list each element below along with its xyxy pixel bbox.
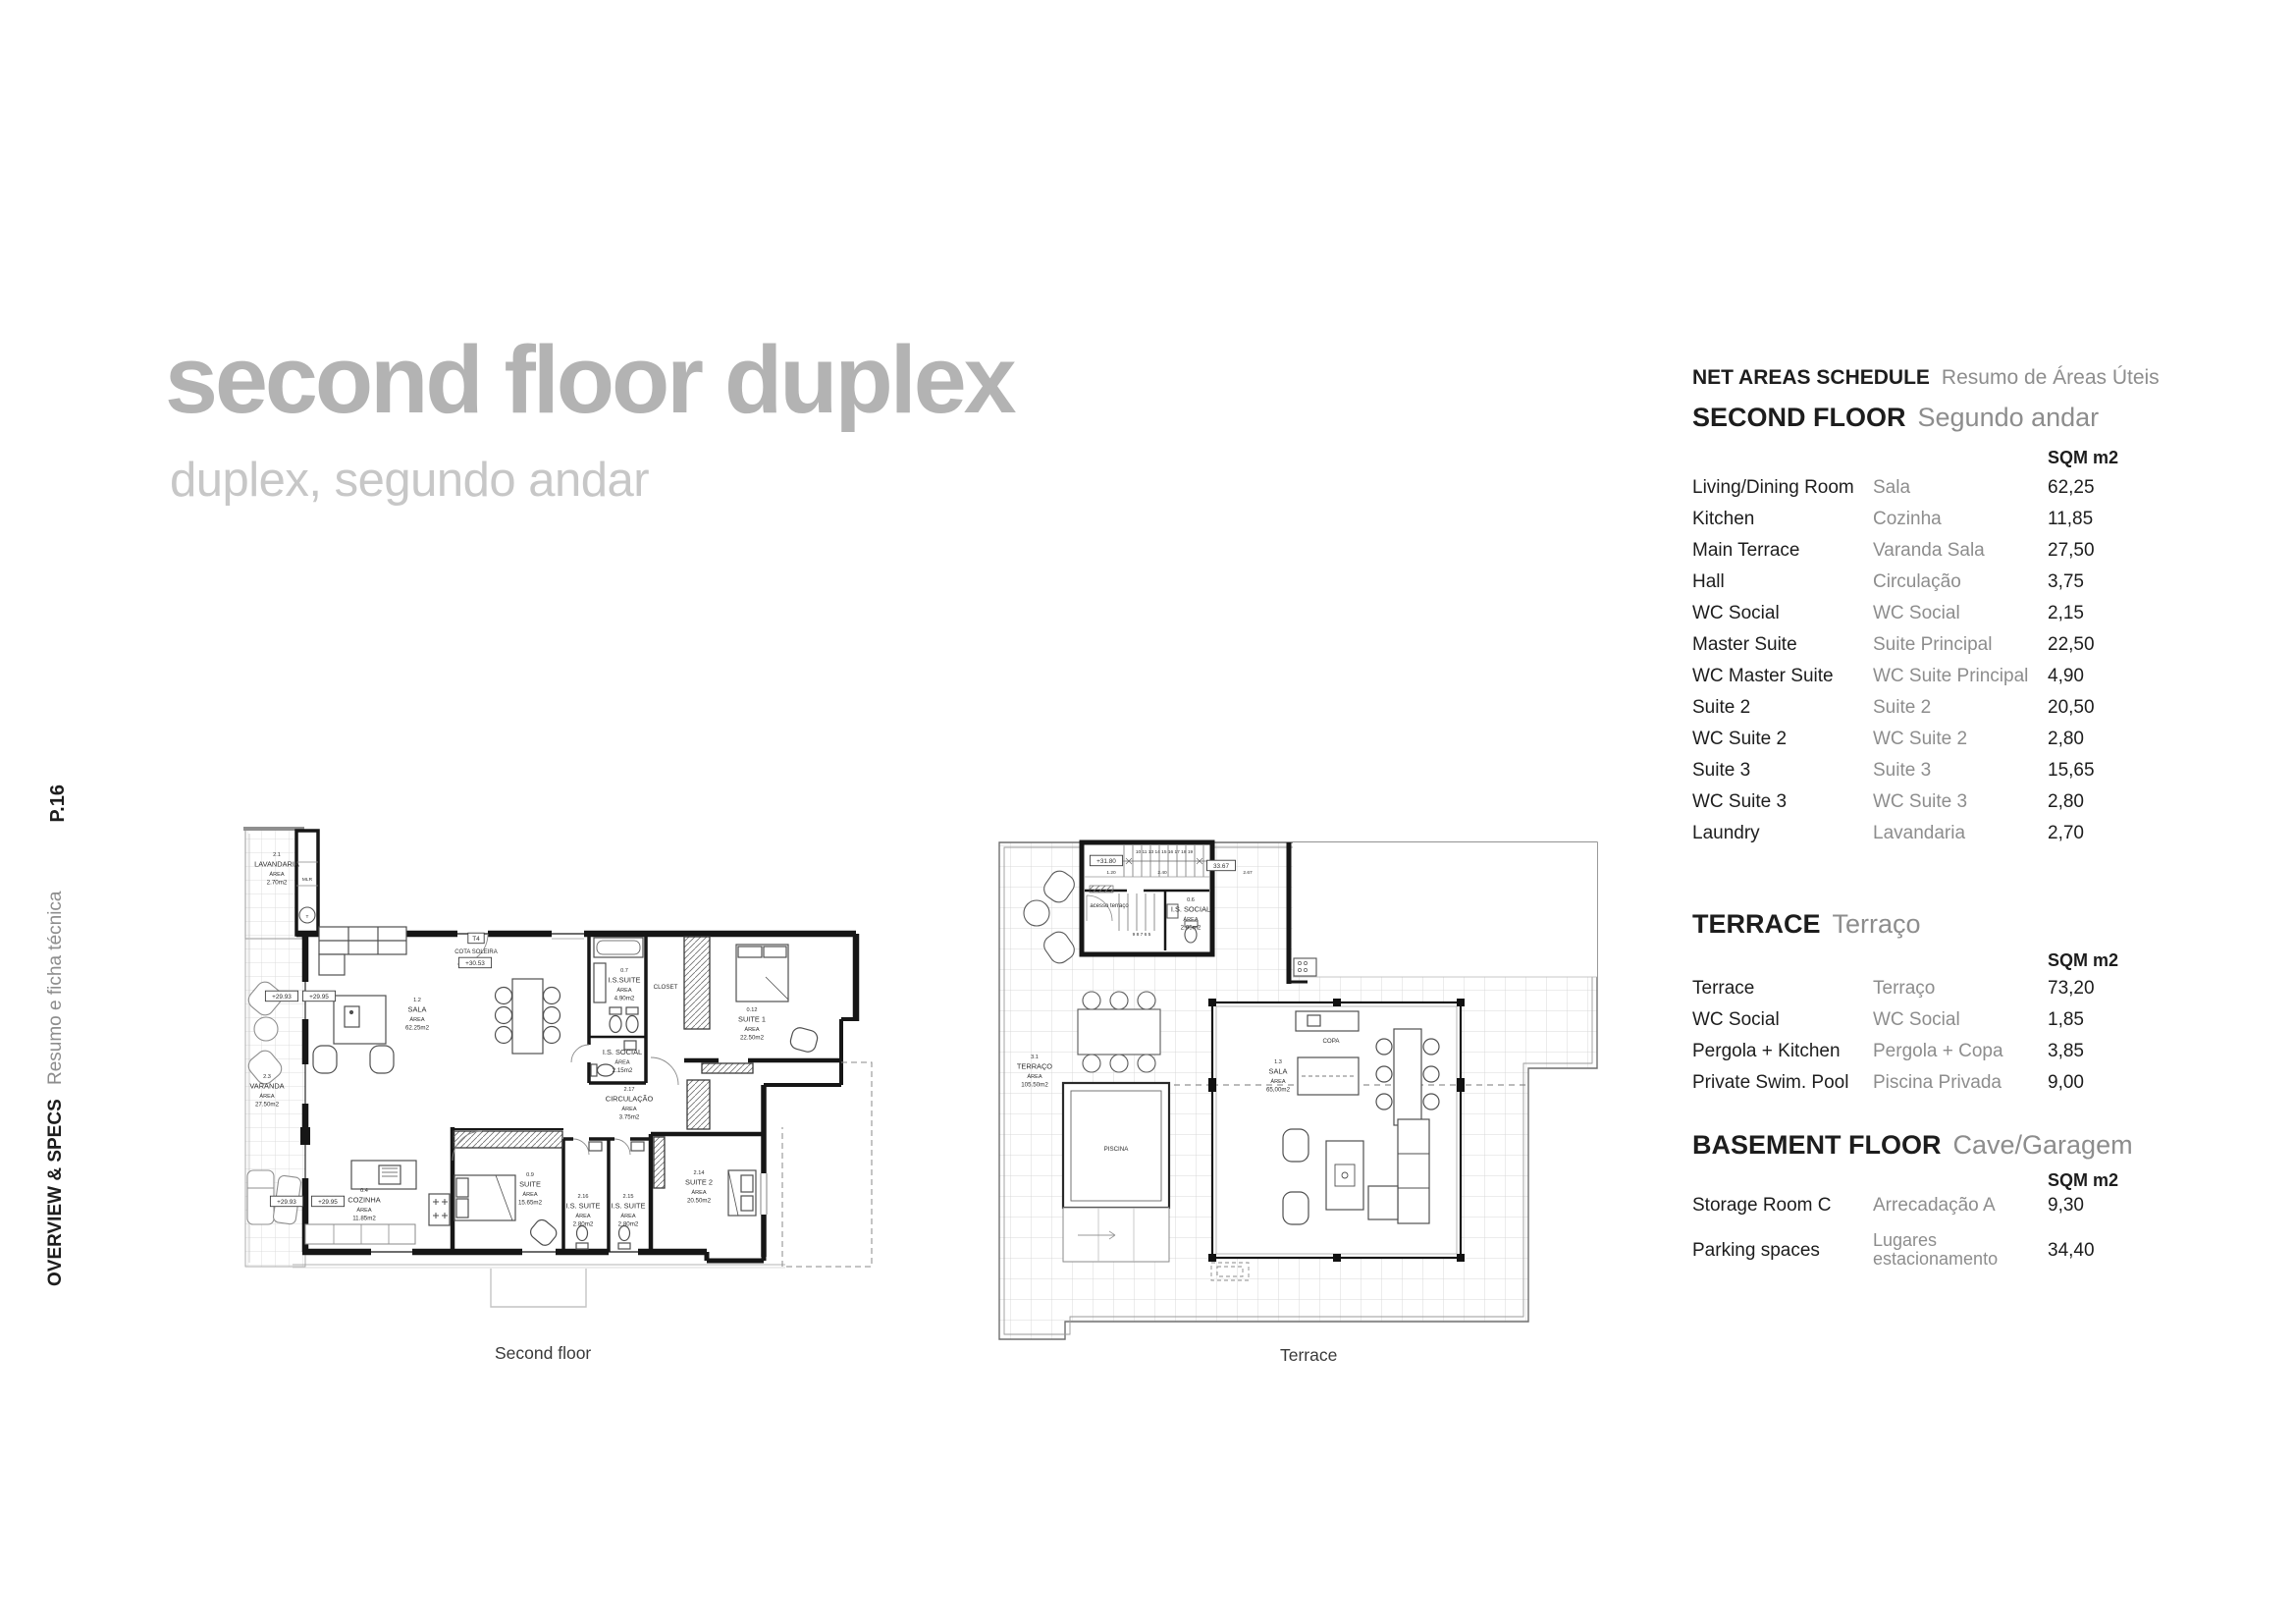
plan-label: 1.20 <box>1106 870 1116 876</box>
section-label-pt: Resumo e ficha técnica <box>45 892 66 1100</box>
svg-text:+30.53: +30.53 <box>465 960 485 967</box>
svg-text:T4: T4 <box>472 936 480 943</box>
plan-caption-second-floor: Second floor <box>495 1343 591 1364</box>
svg-text:33.67: 33.67 <box>1213 863 1229 870</box>
roof-edge-dashed <box>782 1062 872 1267</box>
row-label-en: WC Social <box>1692 1009 1873 1030</box>
section-label: OVERVIEW & SPECSResumo e ficha técnica <box>45 890 67 1286</box>
unit-label: SQM m2 <box>2048 1169 2163 1191</box>
page-subtitle: duplex, segundo andar <box>170 455 649 508</box>
plan-label: PISCINA <box>1104 1146 1130 1153</box>
plan-label: 9 8 7 6 5 <box>1133 932 1151 938</box>
row-label-en: Terrace <box>1692 978 1873 999</box>
section-label-en: OVERVIEW & SPECS <box>45 1099 66 1286</box>
row-label-pt: Sala <box>1873 477 2048 498</box>
schedule-row: LaundryLavandaria2,70 <box>1692 823 2163 854</box>
row-label-en: Kitchen <box>1692 509 1873 529</box>
plan-label: 2.16I.S. SUITEÁREA2.80m2 <box>566 1194 601 1228</box>
row-value-sqm: 3,75 <box>2048 571 2163 592</box>
row-label-pt: Lavandaria <box>1873 823 2048 843</box>
svg-text:acesso terraço: acesso terraço <box>1090 903 1129 909</box>
floorplan-second-floor: 2.1LAVANDARIAÁREA2.70m22.3VARANDAÁREA27.… <box>240 823 879 1319</box>
row-label-en: WC Social <box>1692 603 1873 623</box>
row-label-en: Hall <box>1692 571 1873 592</box>
row-value-sqm: 3,85 <box>2048 1041 2163 1061</box>
schedule-row: HallCirculação3,75 <box>1692 571 2163 603</box>
plan-label: COPA <box>1322 1038 1340 1045</box>
svg-text:T: T <box>306 914 309 920</box>
svg-text:0.9SUITEÁREA15.65m2: 0.9SUITEÁREA15.65m2 <box>518 1172 543 1207</box>
plan-label: 1.2SALAÁREA62.25m2 <box>405 998 430 1032</box>
svg-text:2.16I.S. SUITEÁREA2.80m2: 2.16I.S. SUITEÁREA2.80m2 <box>566 1194 601 1228</box>
row-value-sqm: 2,80 <box>2048 791 2163 812</box>
schedule-row: WC Master SuiteWC Suite Principal4,90 <box>1692 666 2163 697</box>
plan-label: 2.17CIRCULAÇÃOÁREA3.75m2 <box>606 1087 654 1121</box>
row-label-pt: Arrecadação A <box>1873 1195 2048 1216</box>
plan-label: 2.40 <box>1157 870 1167 876</box>
schedule-row: Living/Dining RoomSala62,25 <box>1692 477 2163 509</box>
schedule-row: Suite 3Suite 315,65 <box>1692 760 2163 791</box>
schedule-row: WC SocialWC Social2,15 <box>1692 603 2163 634</box>
svg-text:1.20: 1.20 <box>1106 870 1116 876</box>
schedule-section-title-terrace: TERRACETerraço <box>1692 907 2163 941</box>
plan-label: 0.12SUITE 1ÁREA22.50m2 <box>738 1007 766 1042</box>
row-label-en: Living/Dining Room <box>1692 477 1873 498</box>
schedule-row: TerraceTerraço73,20 <box>1692 978 2163 1009</box>
schedule-row: WC Suite 3WC Suite 32,80 <box>1692 791 2163 823</box>
schedule-unit-row: SQM m2 <box>1692 949 2163 971</box>
svg-text:2.15I.S. SUITEÁREA2.80m2: 2.15I.S. SUITEÁREA2.80m2 <box>612 1194 646 1228</box>
row-value-sqm: 9,00 <box>2048 1072 2163 1093</box>
schedule-row: Suite 2Suite 220,50 <box>1692 697 2163 729</box>
row-value-sqm: 15,65 <box>2048 760 2163 781</box>
schedule-row: Master SuiteSuite Principal22,50 <box>1692 634 2163 666</box>
svg-text:PISCINA: PISCINA <box>1104 1146 1130 1153</box>
svg-text:+29.93: +29.93 <box>272 994 292 1001</box>
svg-text:COTA SOLEIRA: COTA SOLEIRA <box>454 949 498 955</box>
row-label-pt: WC Suite 3 <box>1873 791 2048 812</box>
svg-text:COPA: COPA <box>1322 1038 1340 1045</box>
pool <box>1063 1083 1169 1262</box>
plan-label: 0.9SUITEÁREA15.65m2 <box>518 1172 543 1207</box>
svg-text:10 11 13 14 15 16 17 18 19: 10 11 13 14 15 16 17 18 19 <box>1136 849 1194 855</box>
row-label-pt: Pergola + Copa <box>1873 1041 2048 1061</box>
schedule-section-title-basement-floor: BASEMENT FLOORCave/Garagem <box>1692 1128 2163 1162</box>
net-areas-schedule: NET AREAS SCHEDULEResumo de Áreas ÚteisS… <box>1692 365 2163 1273</box>
row-value-sqm: 9,30 <box>2048 1195 2163 1216</box>
schedule-row: KitchenCozinha11,85 <box>1692 509 2163 540</box>
svg-text:9 8 7 6 5: 9 8 7 6 5 <box>1133 932 1151 938</box>
section-title-en: SECOND FLOOR <box>1692 403 1906 432</box>
plan-label: 2.15I.S. SUITEÁREA2.80m2 <box>612 1194 646 1228</box>
section-title-pt: Segundo andar <box>1918 403 2100 432</box>
row-label-pt: Piscina Privada <box>1873 1072 2048 1093</box>
svg-text:0.12SUITE 1ÁREA22.50m2: 0.12SUITE 1ÁREA22.50m2 <box>738 1007 766 1042</box>
plan-label: +29.93 <box>270 1196 302 1207</box>
brochure-page: second floor duplex duplex, segundo anda… <box>0 0 2296 1624</box>
plan-caption-terrace: Terrace <box>1280 1345 1337 1366</box>
plan-label: +30.53 <box>458 957 491 968</box>
row-label-en: Pergola + Kitchen <box>1692 1041 1873 1061</box>
plan-label: 33.67 <box>1207 860 1236 871</box>
plan-label: MLR <box>302 877 313 883</box>
svg-text:+31.80: +31.80 <box>1096 858 1116 865</box>
plan-label: T4 <box>468 933 484 944</box>
plan-label: +31.80 <box>1090 855 1122 866</box>
schedule-row: Private Swim. PoolPiscina Privada9,00 <box>1692 1072 2163 1104</box>
section-title-en: BASEMENT FLOOR <box>1692 1130 1942 1160</box>
section-title-pt: Terraço <box>1833 909 1921 939</box>
row-value-sqm: 27,50 <box>2048 540 2163 561</box>
row-label-en: Suite 3 <box>1692 760 1873 781</box>
row-label-pt: Circulação <box>1873 571 2048 592</box>
svg-text:+29.95: +29.95 <box>318 1199 338 1206</box>
schedule-header-pt: Resumo de Áreas Úteis <box>1942 366 2160 389</box>
plan-label: +29.93 <box>265 991 297 1001</box>
row-value-sqm: 2,70 <box>2048 823 2163 843</box>
schedule-header-en: NET AREAS SCHEDULE <box>1692 366 1930 389</box>
row-label-pt: WC Suite Principal <box>1873 666 2048 686</box>
floorplan-terrace: 3.1TERRAÇOÁREA105.50m21.3SALAÁREA65,00m2… <box>989 833 1637 1351</box>
schedule-row: Storage Room CArrecadação A9,30 <box>1692 1195 2163 1226</box>
row-label-en: WC Suite 3 <box>1692 791 1873 812</box>
page-title: second floor duplex <box>165 332 1014 427</box>
schedule-header: NET AREAS SCHEDULEResumo de Áreas Úteis <box>1692 365 2163 391</box>
row-label-pt: Varanda Sala <box>1873 540 2048 561</box>
plan-label: 0.4COZINHAÁREA11.85m2 <box>347 1188 380 1222</box>
row-value-sqm: 2,15 <box>2048 603 2163 623</box>
row-value-sqm: 73,20 <box>2048 978 2163 999</box>
plan-label: 0.7I.S.SUITEÁREA4.90m2 <box>609 968 641 1002</box>
void-area <box>1293 842 1597 977</box>
unit-label: SQM m2 <box>2048 447 2163 468</box>
plan-label: 2.67 <box>1243 870 1253 876</box>
row-label-pt: WC Social <box>1873 603 2048 623</box>
section-title-en: TERRACE <box>1692 909 1821 939</box>
plan-label: +29.95 <box>302 991 335 1001</box>
svg-text:1.2SALAÁREA62.25m2: 1.2SALAÁREA62.25m2 <box>405 998 430 1032</box>
row-label-pt: Lugares estacionamento <box>1873 1231 2048 1269</box>
row-label-pt: WC Social <box>1873 1009 2048 1030</box>
row-label-en: Master Suite <box>1692 634 1873 655</box>
plan-label: +29.95 <box>311 1196 344 1207</box>
row-label-en: Storage Room C <box>1692 1195 1873 1216</box>
svg-text:MLR: MLR <box>302 877 313 883</box>
schedule-unit-row: SQM m2 <box>1692 1169 2163 1191</box>
row-label-pt: Suite 3 <box>1873 760 2048 781</box>
plan-label: T <box>306 914 309 920</box>
row-label-pt: Terraço <box>1873 978 2048 999</box>
plan-label: COTA SOLEIRA <box>454 949 498 955</box>
svg-text:2.40: 2.40 <box>1157 870 1167 876</box>
schedule-row: Pergola + KitchenPergola + Copa3,85 <box>1692 1041 2163 1072</box>
row-label-en: Private Swim. Pool <box>1692 1072 1873 1093</box>
row-label-en: WC Master Suite <box>1692 666 1873 686</box>
schedule-section-title-second-floor: SECOND FLOORSegundo andar <box>1692 401 2163 434</box>
svg-text:0.7I.S.SUITEÁREA4.90m2: 0.7I.S.SUITEÁREA4.90m2 <box>609 968 641 1002</box>
svg-text:0.4COZINHAÁREA11.85m2: 0.4COZINHAÁREA11.85m2 <box>347 1188 380 1222</box>
row-label-en: Main Terrace <box>1692 540 1873 561</box>
row-value-sqm: 22,50 <box>2048 634 2163 655</box>
section-title-pt: Cave/Garagem <box>1953 1130 2133 1160</box>
unit-label: SQM m2 <box>2048 949 2163 971</box>
row-label-en: Suite 2 <box>1692 697 1873 718</box>
row-value-sqm: 11,85 <box>2048 509 2163 529</box>
row-label-pt: Cozinha <box>1873 509 2048 529</box>
schedule-unit-row: SQM m2 <box>1692 447 2163 468</box>
row-value-sqm: 20,50 <box>2048 697 2163 718</box>
svg-text:+29.95: +29.95 <box>309 994 329 1001</box>
plan-label: 10 11 13 14 15 16 17 18 19 <box>1136 849 1194 855</box>
row-label-pt: Suite 2 <box>1873 697 2048 718</box>
schedule-row: Main TerraceVaranda Sala27,50 <box>1692 540 2163 571</box>
svg-text:+29.93: +29.93 <box>277 1199 296 1206</box>
plan-label: acesso terraço <box>1090 903 1129 909</box>
row-label-en: Laundry <box>1692 823 1873 843</box>
row-label-pt: WC Suite 2 <box>1873 729 2048 749</box>
svg-text:2.67: 2.67 <box>1243 870 1253 876</box>
row-value-sqm: 2,80 <box>2048 729 2163 749</box>
schedule-row: Parking spacesLugares estacionamento34,4… <box>1692 1226 2163 1273</box>
svg-text:2.14SUITE 2ÁREA20.50m2: 2.14SUITE 2ÁREA20.50m2 <box>685 1170 713 1205</box>
row-value-sqm: 1,85 <box>2048 1009 2163 1030</box>
plan-label: 2.14SUITE 2ÁREA20.50m2 <box>685 1170 713 1205</box>
plan-label: CLOSET <box>654 984 678 991</box>
row-label-pt: Suite Principal <box>1873 634 2048 655</box>
page-number: P.16 <box>47 785 70 823</box>
row-label-en: Parking spaces <box>1692 1240 1873 1261</box>
schedule-row: WC SocialWC Social1,85 <box>1692 1009 2163 1041</box>
porch-outline <box>491 1269 586 1307</box>
schedule-row: WC Suite 2WC Suite 22,80 <box>1692 729 2163 760</box>
svg-text:2.17CIRCULAÇÃOÁREA3.75m2: 2.17CIRCULAÇÃOÁREA3.75m2 <box>606 1087 654 1121</box>
row-value-sqm: 62,25 <box>2048 477 2163 498</box>
row-label-en: WC Suite 2 <box>1692 729 1873 749</box>
row-value-sqm: 4,90 <box>2048 666 2163 686</box>
row-value-sqm: 34,40 <box>2048 1240 2163 1261</box>
svg-text:CLOSET: CLOSET <box>654 984 678 991</box>
